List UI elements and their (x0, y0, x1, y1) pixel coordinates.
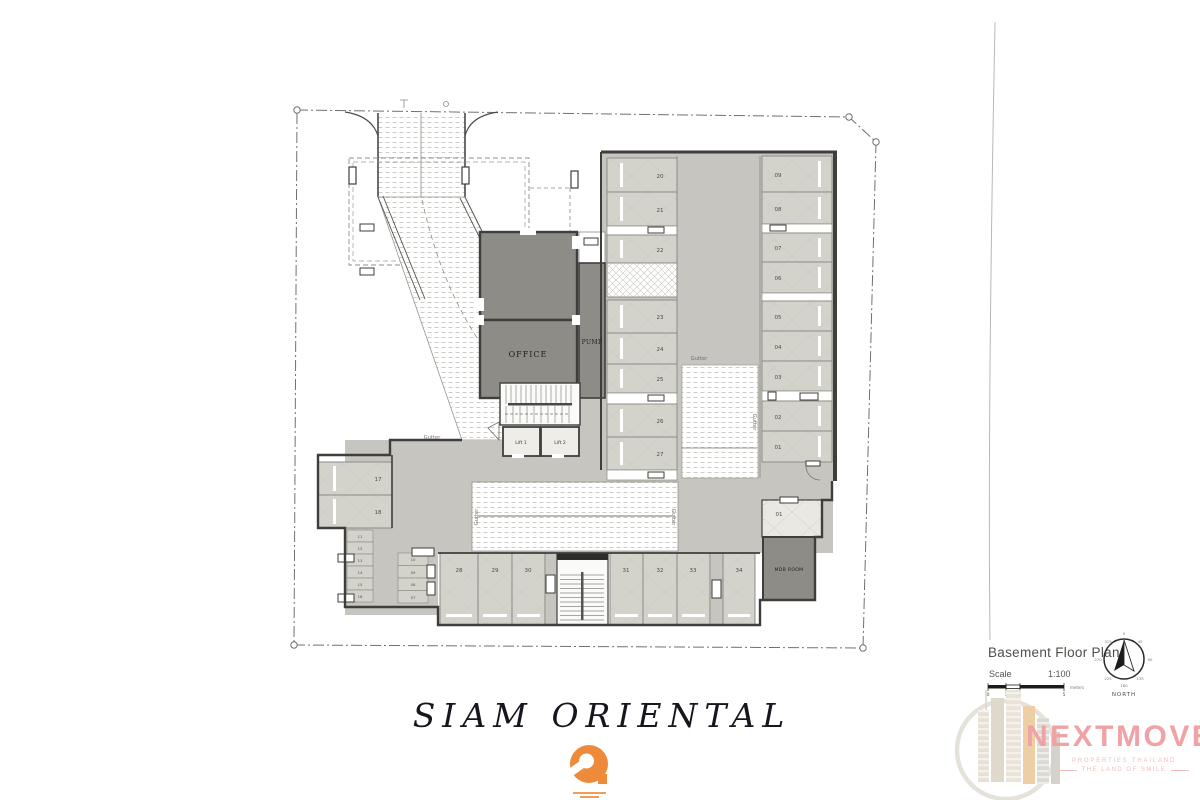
stall-number: 14 (358, 570, 363, 575)
internal-ramp-bottom (472, 482, 678, 551)
stall-number: 17 (375, 477, 382, 483)
stall-number: 24 (657, 347, 664, 353)
compass-degree: 90 (1148, 657, 1153, 662)
stall-number: 18 (375, 510, 382, 516)
compass-degree: 180 (1120, 683, 1128, 688)
scale-label: Scale (989, 669, 1012, 679)
stall-number: 09 (411, 570, 416, 575)
nextmove-tagline-1: PROPERTIES THAILAND (1062, 758, 1186, 764)
stall-number: 26 (657, 419, 664, 425)
tagline-text: THE LAND OF SMILE (1082, 767, 1167, 773)
parking-mini-mid (398, 548, 435, 603)
compass-degree: 225 (1104, 676, 1112, 681)
nextmove-tagline-2: THE LAND OF SMILE (1050, 767, 1198, 773)
stall-number: 23 (657, 315, 664, 321)
project-logo (567, 743, 612, 793)
pump-label: PUMP (582, 339, 603, 346)
lift1-label: Lift 1 (515, 440, 527, 446)
logo-caption-line (580, 796, 599, 798)
nextmove-wordmark: NEXTMOVE (1026, 720, 1200, 754)
gutter-label: Gutter (751, 414, 757, 432)
stall-number: 34 (736, 568, 743, 574)
corner-stall (762, 497, 822, 537)
logo-caption-line (573, 792, 606, 794)
core-rooms (476, 228, 605, 398)
stall-number: 22 (657, 248, 664, 254)
stall-number: 12 (358, 546, 363, 551)
stall-number: 02 (775, 415, 782, 421)
stall-number: 01 (775, 445, 782, 451)
gutter-label: Gutter (474, 508, 480, 526)
stall-number: 21 (657, 208, 664, 214)
gutter-label: Gutter (691, 356, 709, 362)
gutter-label: Gutter (670, 509, 676, 527)
stall-number: 10 (411, 557, 416, 562)
stall-number: 01 (776, 512, 783, 518)
stall-number: 07 (775, 246, 782, 252)
stall-number: 33 (690, 568, 697, 574)
sheet-edge-line (989, 22, 995, 640)
fire-stair (557, 553, 608, 625)
stall-number: 32 (657, 568, 664, 574)
stall-number: 07 (411, 595, 416, 600)
compass-degree: 45 (1138, 639, 1143, 644)
stall-number: 28 (456, 568, 463, 574)
compass-degree: 270 (1094, 657, 1102, 662)
compass-degree: 315 (1104, 639, 1112, 644)
stall-number: 25 (657, 377, 664, 383)
stall-number: 13 (358, 558, 363, 563)
stall-number: 08 (411, 582, 416, 587)
scale-row: Scale 1:100 (989, 669, 1071, 679)
compass-north-label: NORTH (1112, 692, 1136, 698)
stall-number: 03 (775, 375, 782, 381)
gutter-label: Gutter (424, 435, 442, 441)
stall-number: 06 (775, 276, 782, 282)
office-label: OFFICE (509, 350, 548, 359)
scale-value: 1:100 (1048, 669, 1071, 679)
stall-number: 20 (657, 174, 664, 180)
tagline-dash (1059, 770, 1077, 771)
stall-number: 16 (358, 594, 363, 599)
parking-column-middle (607, 158, 677, 480)
mdb-label: MDB ROOM (775, 567, 804, 573)
stall-number: 27 (657, 452, 664, 458)
stall-number: 05 (775, 315, 782, 321)
project-title: SIAM ORIENTAL (402, 696, 802, 735)
north-compass-icon: 0 45 90 135 180 225 270 315 NORTH (1092, 626, 1156, 698)
parking-column-right (762, 156, 832, 480)
internal-ramp-right (682, 365, 758, 478)
stall-number: 04 (775, 345, 782, 351)
page: OFFICE PUMP MDB ROOM Lift 1 Lift 2 Gutte… (0, 0, 1200, 800)
compass-degree: 135 (1136, 676, 1144, 681)
stall-number: 11 (358, 534, 363, 539)
stall-number: 15 (358, 582, 363, 587)
parking-left-pair (318, 462, 392, 528)
stall-number: 30 (525, 568, 532, 574)
compass-degree: 0 (1123, 631, 1126, 636)
lift2-label: Lift 2 (554, 440, 566, 446)
stall-number: 08 (775, 207, 782, 213)
tagline-dash (1171, 770, 1189, 771)
parking-mini-left (338, 530, 373, 602)
stall-number: 29 (492, 568, 499, 574)
stall-number: 31 (623, 568, 630, 574)
stall-number: 09 (775, 173, 782, 179)
